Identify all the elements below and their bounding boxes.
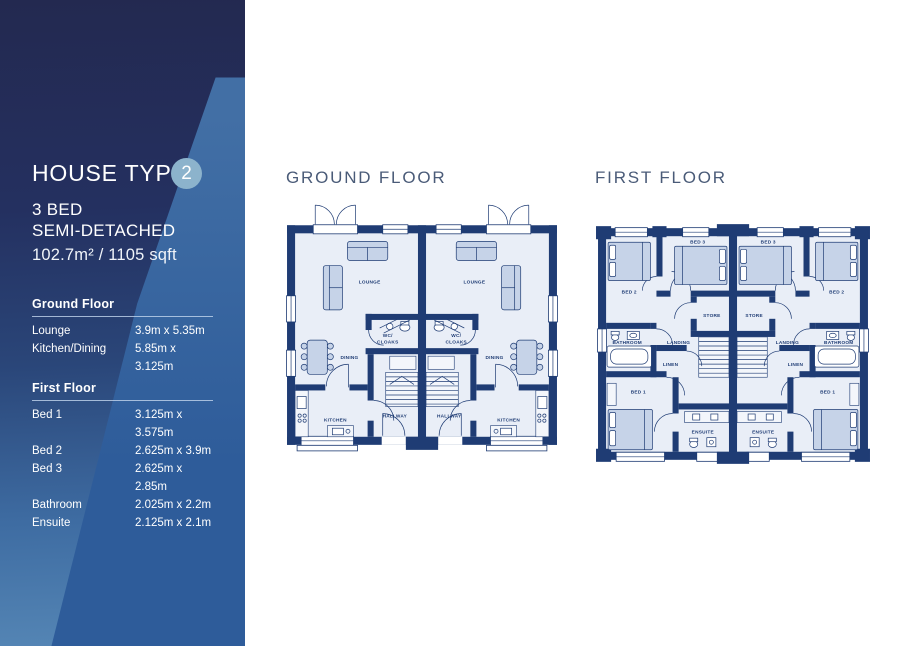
room-dimensions: 5.85m x 3.125m [135,340,213,376]
room-name: Lounge [32,322,135,340]
party-wall [418,225,426,445]
room-name: Bed 3 [32,460,135,496]
room-name: Kitchen/Dining [32,340,135,376]
room-label-ensuite: ENSUITE [752,430,774,436]
spec-row: Lounge 3.9m x 5.35m [32,322,213,340]
chimney-block [406,437,438,450]
room-label-bed2: BED 2 [829,290,844,296]
room-label-cloaks: CLOAKS [377,340,398,346]
spec-row: Bed 3 2.625m x 2.85m [32,460,213,496]
room-label-bed3: BED 3 [690,239,705,245]
floor-area-text: 102.7m² / 1105 sqft [32,246,177,265]
party-wall [729,228,737,460]
spec-section-first-floor: First Floor Bed 1 3.125m x 3.575m Bed 2 … [32,381,213,532]
room-name: Bathroom [32,496,135,514]
room-label-bed1: BED 1 [631,389,646,395]
room-label-bed1: BED 1 [820,389,835,395]
room-label-landing: LANDING [667,340,690,346]
room-label-bathroom: BATHROOM [613,340,642,346]
chimney-block [717,452,749,464]
room-label-landing: LANDING [776,340,799,346]
spec-row: Bathroom 2.025m x 2.2m [32,496,213,514]
detached-type-line: SEMI-DETACHED [32,220,175,241]
spec-row: Ensuite 2.125m x 2.1m [32,514,213,532]
ground-floor-plan-title: GROUND FLOOR [286,168,446,188]
room-label-store: STORE [703,313,720,319]
room-label-wc: WC/ [451,333,461,339]
chimney-block [717,224,749,236]
spec-heading-first: First Floor [32,381,213,395]
house-type-number-badge: 2 [171,158,202,189]
room-label-bed2: BED 2 [622,290,637,296]
room-label-hallway: HALLWAY [383,414,408,420]
house-type-title: HOUSE TYPE [32,160,188,187]
spec-row: Bed 1 3.125m x 3.575m [32,406,213,442]
room-dimensions: 2.625m x 2.85m [135,460,213,496]
spec-section-ground-floor: Ground Floor Lounge 3.9m x 5.35m Kitchen… [32,297,213,376]
first-floor-plan-title: FIRST FLOOR [595,168,727,188]
room-label-bathroom: BATHROOM [824,340,853,346]
room-name: Ensuite [32,514,135,532]
room-label-lounge: LOUNGE [359,280,381,286]
room-label-kitchen: KITCHEN [497,418,520,424]
divider [32,400,213,401]
room-name: Bed 2 [32,442,135,460]
room-label-dining: DINING [486,355,504,361]
first-floor-plan: BED 3 BED 3 BED 2 BED 2 STORE STORE BATH… [594,224,872,466]
bed-count-line: 3 BED [32,199,175,220]
room-dimensions: 2.125m x 2.1m [135,514,213,532]
room-name: Bed 1 [32,406,135,442]
room-label-ensuite: ENSUITE [692,430,714,436]
room-label-linen: LINEN [663,362,679,368]
house-type-description: 3 BED SEMI-DETACHED [32,199,175,241]
room-dimensions: 2.625m x 3.9m [135,442,213,460]
room-label-hallway: HALLWAY [437,414,462,420]
room-label-kitchen: KITCHEN [324,418,347,424]
room-label-store: STORE [745,313,762,319]
spec-heading-ground: Ground Floor [32,297,213,311]
spec-row: Kitchen/Dining 5.85m x 3.125m [32,340,213,376]
sidebar: HOUSE TYPE 2 3 BED SEMI-DETACHED 102.7m²… [0,0,245,646]
room-label-bed3: BED 3 [761,239,776,245]
room-dimensions: 3.9m x 5.35m [135,322,213,340]
divider [32,316,213,317]
room-label-cloaks: CLOAKS [446,340,467,346]
room-label-wc: WC/ [383,333,393,339]
ground-floor-plan: LOUNGE LOUNGE WC/ CLOAKS WC/ CLOAKS DINI… [283,203,561,453]
room-label-lounge: LOUNGE [464,280,486,286]
room-dimensions: 2.025m x 2.2m [135,496,213,514]
spec-row: Bed 2 2.625m x 3.9m [32,442,213,460]
room-dimensions: 3.125m x 3.575m [135,406,213,442]
room-label-linen: LINEN [788,362,804,368]
room-label-dining: DINING [340,355,358,361]
